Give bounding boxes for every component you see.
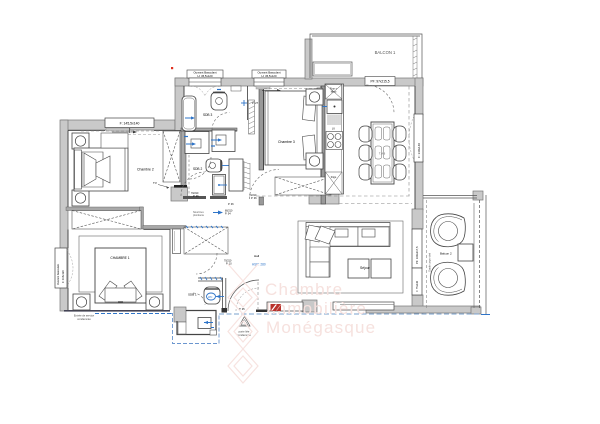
svg-text:Chambre 3: Chambre 3 [278, 140, 295, 144]
svg-text:H: 45,5x120: H: 45,5x120 [261, 74, 277, 78]
svg-text:P: 27: P: 27 [252, 101, 259, 105]
svg-text:Chambre: Chambre [265, 280, 343, 299]
svg-text:F: 140x140: F: 140x140 [417, 143, 421, 158]
svg-text:F: 75x140: F: 75x140 [416, 280, 419, 292]
svg-text:P: 06: P: 06 [228, 203, 234, 206]
svg-text:Micro: Micro [331, 90, 337, 93]
svg-text:HSP: 280: HSP: 280 [252, 263, 266, 267]
svg-text:Monégasque: Monégasque [266, 318, 376, 337]
svg-text:Balcon 2: Balcon 2 [440, 252, 452, 256]
svg-text:Chambre 2: Chambre 2 [137, 168, 154, 172]
svg-text:SDB 1: SDB 1 [188, 293, 197, 297]
svg-text:P: 04: P: 04 [225, 213, 231, 216]
svg-text:Séjour: Séjour [360, 266, 371, 270]
svg-text:Immobilière: Immobilière [266, 299, 367, 318]
svg-text:TV: TV [153, 181, 157, 185]
svg-text:PF: 97x215,5: PF: 97x215,5 [371, 79, 390, 83]
svg-text:porte liée: porte liée [239, 330, 250, 334]
svg-text:Ouvrant basculant: Ouvrant basculant [56, 264, 60, 285]
svg-text:F: 115x120: F: 115x120 [61, 270, 65, 283]
svg-text:H: 45,5x120: H: 45,5x120 [197, 74, 213, 78]
svg-text:P: 06: P: 06 [251, 197, 257, 200]
svg-text:condamnée: condamnée [77, 317, 91, 321]
svg-text:Hall: Hall [254, 254, 260, 258]
svg-text:T. A 6: T. A 6 [379, 152, 386, 156]
svg-text:WC: WC [208, 295, 212, 299]
svg-text:P: 06: P: 06 [193, 195, 199, 198]
svg-text:Entrée de service: Entrée de service [74, 314, 95, 318]
svg-text:Frigo: Frigo [331, 176, 337, 179]
svg-text:BALCON 1: BALCON 1 [375, 50, 396, 55]
svg-text:plomberie: plomberie [193, 214, 205, 217]
svg-text:F: 145,5x140: F: 145,5x140 [120, 122, 140, 126]
svg-text:Garde corps vitré: Garde corps vitré [429, 252, 432, 272]
svg-text:SDB 2: SDB 2 [193, 167, 202, 171]
svg-text:SDB 3: SDB 3 [203, 113, 212, 117]
svg-text:LV: LV [332, 127, 335, 131]
svg-text:Four +: Four + [330, 88, 337, 91]
svg-text:CHAMBRE 1: CHAMBRE 1 [110, 256, 129, 260]
svg-text:PF: 100x217,5: PF: 100x217,5 [415, 246, 419, 264]
